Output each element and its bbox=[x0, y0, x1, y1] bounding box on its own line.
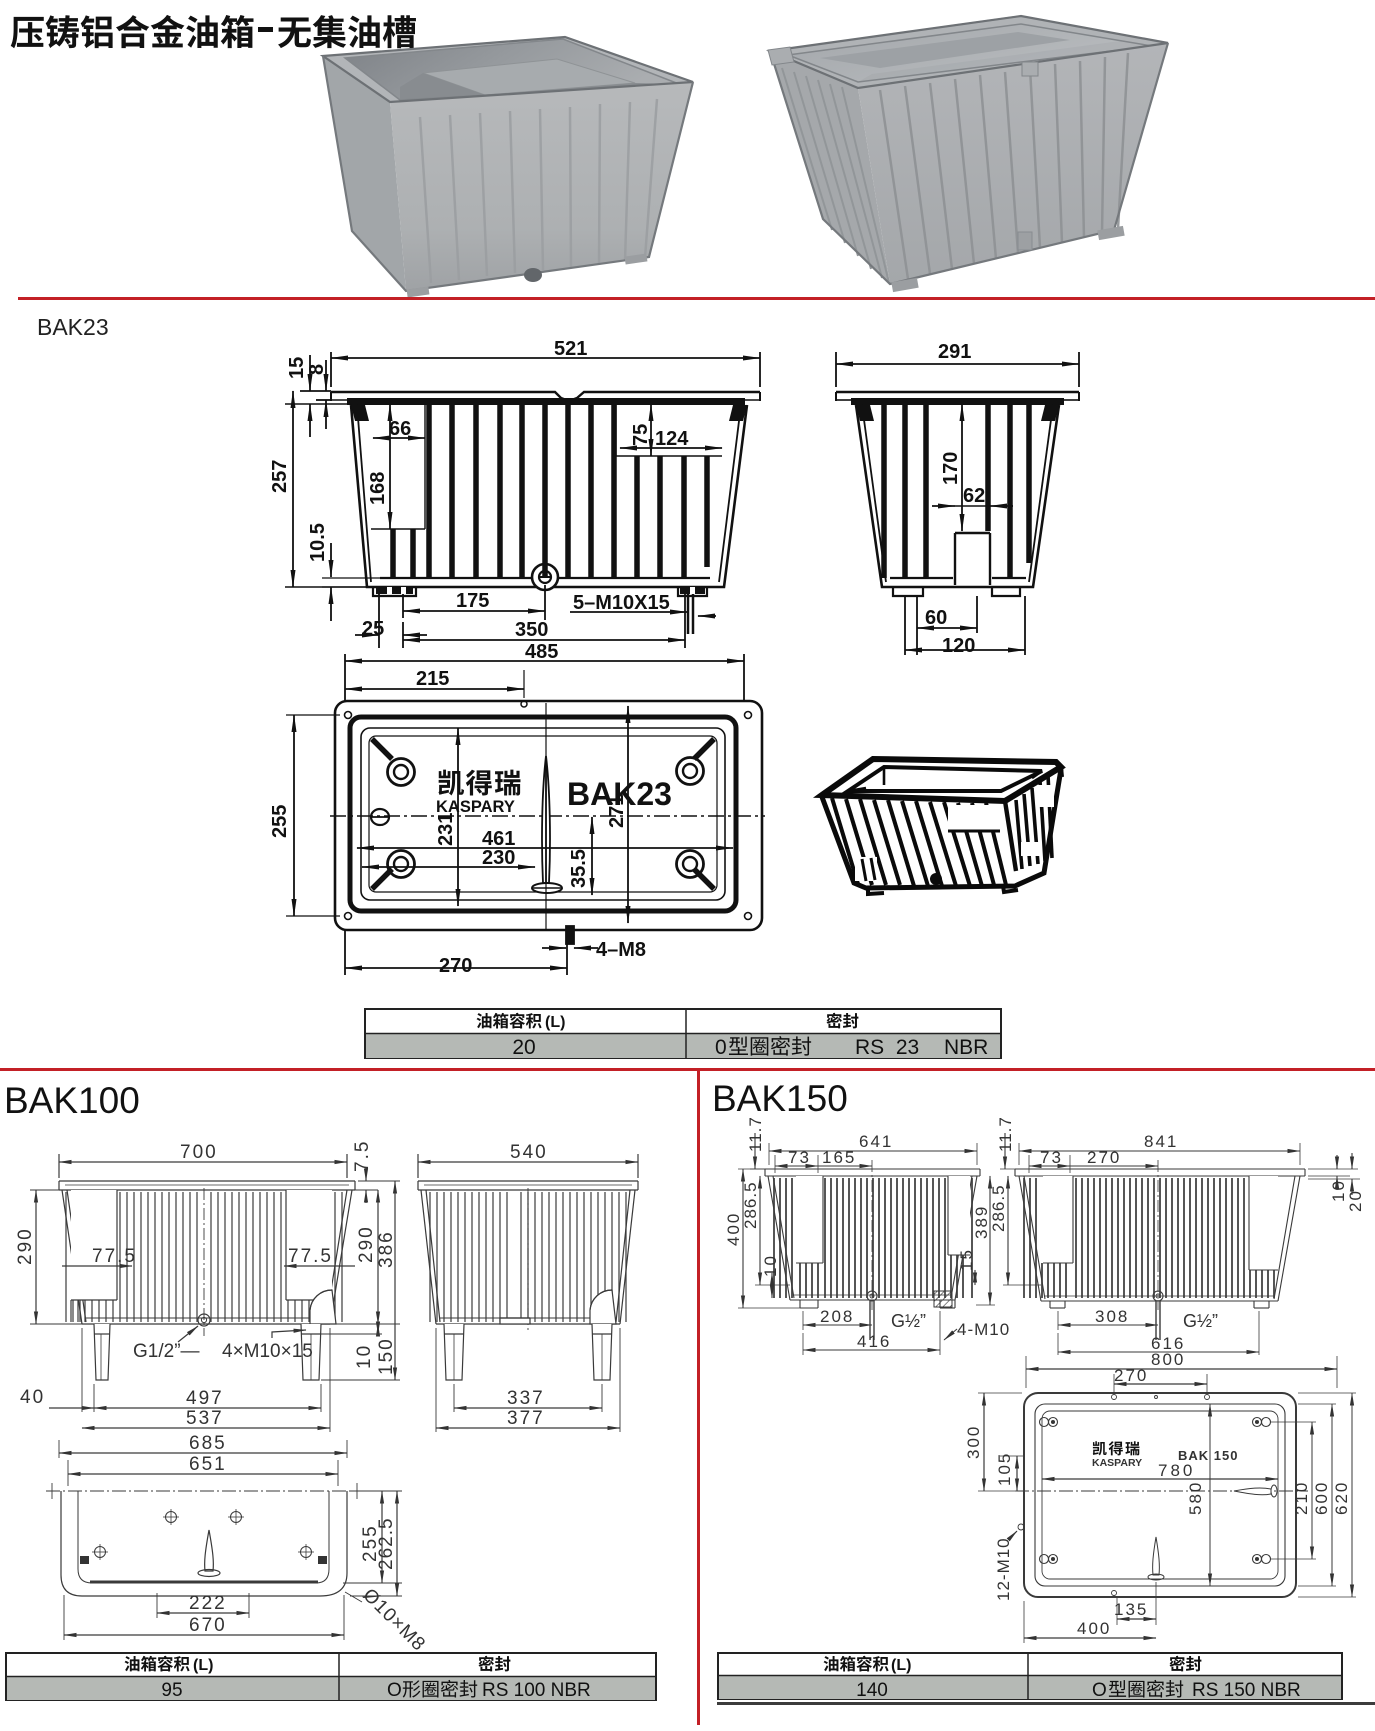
svg-text:150: 150 bbox=[376, 1337, 397, 1375]
svg-text:NBR: NBR bbox=[944, 1036, 988, 1059]
svg-text:210: 210 bbox=[1292, 1481, 1311, 1515]
svg-text:BAK23: BAK23 bbox=[567, 776, 672, 812]
svg-text:215: 215 bbox=[416, 668, 449, 690]
svg-text:62: 62 bbox=[963, 485, 985, 507]
svg-text:231: 231 bbox=[435, 813, 457, 846]
svg-text:(L): (L) bbox=[193, 1657, 213, 1674]
svg-text:337: 337 bbox=[507, 1388, 545, 1409]
svg-text:537: 537 bbox=[186, 1408, 224, 1429]
svg-text:(L): (L) bbox=[545, 1014, 565, 1031]
svg-text:Ø10×M8: Ø10×M8 bbox=[358, 1585, 429, 1650]
svg-text:105: 105 bbox=[995, 1452, 1014, 1486]
svg-text:12-M10: 12-M10 bbox=[994, 1537, 1013, 1601]
svg-text:286.5: 286.5 bbox=[741, 1181, 760, 1229]
svg-text:580: 580 bbox=[1186, 1481, 1205, 1515]
svg-text:RS 100 NBR: RS 100 NBR bbox=[482, 1680, 591, 1701]
svg-text:170: 170 bbox=[940, 452, 962, 485]
svg-text:270: 270 bbox=[439, 955, 472, 977]
svg-text:841: 841 bbox=[1144, 1132, 1178, 1151]
svg-text:780: 780 bbox=[1158, 1461, 1195, 1480]
svg-text:G½”: G½” bbox=[1183, 1311, 1218, 1331]
svg-text:291: 291 bbox=[938, 341, 971, 363]
svg-text:G½”: G½” bbox=[891, 1311, 926, 1331]
svg-text:262.5: 262.5 bbox=[376, 1517, 397, 1570]
svg-text:208: 208 bbox=[820, 1307, 854, 1326]
svg-text:5–M10X15: 5–M10X15 bbox=[573, 592, 670, 614]
svg-text:77.5: 77.5 bbox=[92, 1246, 137, 1267]
svg-text:620: 620 bbox=[1332, 1481, 1351, 1515]
svg-text:RS 150 NBR: RS 150 NBR bbox=[1192, 1680, 1301, 1701]
svg-text:124: 124 bbox=[655, 428, 689, 450]
svg-text:120: 120 bbox=[942, 635, 975, 657]
svg-text:20: 20 bbox=[512, 1036, 535, 1059]
svg-text:G1/2”—: G1/2”— bbox=[133, 1341, 200, 1362]
svg-text:140: 140 bbox=[856, 1680, 888, 1701]
svg-text:286.5: 286.5 bbox=[989, 1184, 1008, 1232]
svg-text:(L): (L) bbox=[891, 1657, 911, 1674]
svg-text:10: 10 bbox=[761, 1254, 780, 1277]
svg-text:25: 25 bbox=[362, 618, 384, 640]
svg-text:35.5: 35.5 bbox=[568, 849, 590, 888]
svg-text:350: 350 bbox=[515, 619, 548, 641]
svg-text:700: 700 bbox=[180, 1142, 218, 1163]
svg-text:0: 0 bbox=[715, 1036, 727, 1059]
svg-text:RS 23: RS 23 bbox=[855, 1036, 919, 1059]
svg-text:255: 255 bbox=[270, 805, 291, 838]
svg-text:11.7: 11.7 bbox=[996, 1116, 1015, 1152]
svg-text:77.5: 77.5 bbox=[288, 1246, 333, 1267]
svg-text:135: 135 bbox=[1114, 1600, 1148, 1619]
svg-text:O: O bbox=[387, 1680, 402, 1701]
svg-text:290: 290 bbox=[356, 1225, 377, 1263]
svg-text:KASPARY: KASPARY bbox=[1092, 1457, 1142, 1469]
svg-text:60: 60 bbox=[925, 607, 947, 629]
svg-text:521: 521 bbox=[554, 338, 587, 360]
svg-text:75: 75 bbox=[630, 424, 652, 446]
svg-text:10: 10 bbox=[354, 1344, 375, 1369]
svg-text:4-M10: 4-M10 bbox=[957, 1320, 1010, 1339]
svg-text:20: 20 bbox=[1346, 1189, 1365, 1212]
svg-text:11.7: 11.7 bbox=[746, 1116, 765, 1152]
svg-text:175: 175 bbox=[456, 590, 489, 612]
svg-text:230: 230 bbox=[482, 847, 515, 869]
svg-text:651: 651 bbox=[189, 1454, 227, 1475]
svg-text:165: 165 bbox=[822, 1148, 856, 1167]
svg-text:386: 386 bbox=[376, 1230, 397, 1268]
svg-text:4×M10×15: 4×M10×15 bbox=[222, 1341, 313, 1362]
svg-text:497: 497 bbox=[186, 1388, 224, 1409]
svg-text:40: 40 bbox=[20, 1387, 45, 1408]
svg-text:377: 377 bbox=[507, 1408, 545, 1429]
svg-text:15: 15 bbox=[957, 1248, 976, 1271]
svg-text:257: 257 bbox=[270, 460, 291, 493]
svg-text:168: 168 bbox=[367, 472, 389, 505]
svg-text:485: 485 bbox=[525, 641, 558, 663]
svg-text:15: 15 bbox=[286, 357, 308, 379]
svg-text:KASPARY: KASPARY bbox=[436, 798, 515, 816]
svg-text:670: 670 bbox=[189, 1615, 227, 1636]
svg-text:10.5: 10.5 bbox=[307, 523, 329, 562]
svg-text:73: 73 bbox=[1040, 1148, 1063, 1167]
svg-text:7.5: 7.5 bbox=[352, 1140, 373, 1172]
svg-text:290: 290 bbox=[15, 1227, 36, 1265]
svg-text:270: 270 bbox=[1114, 1366, 1148, 1385]
svg-text:270: 270 bbox=[1087, 1148, 1121, 1167]
svg-text:600: 600 bbox=[1312, 1481, 1331, 1515]
svg-text:540: 540 bbox=[510, 1142, 548, 1163]
svg-text:800: 800 bbox=[1151, 1350, 1185, 1369]
svg-text:O: O bbox=[1092, 1680, 1107, 1701]
svg-text:300: 300 bbox=[964, 1425, 983, 1459]
svg-text:641: 641 bbox=[859, 1132, 893, 1151]
svg-text:308: 308 bbox=[1095, 1307, 1129, 1326]
svg-text:95: 95 bbox=[161, 1680, 182, 1701]
svg-text:8: 8 bbox=[306, 364, 328, 375]
svg-text:416: 416 bbox=[857, 1332, 891, 1351]
svg-text:66: 66 bbox=[389, 418, 411, 440]
svg-text:BAK 150: BAK 150 bbox=[1178, 1448, 1238, 1463]
svg-text:4–M8: 4–M8 bbox=[596, 939, 646, 961]
svg-text:222: 222 bbox=[189, 1593, 227, 1614]
svg-text:400: 400 bbox=[1077, 1619, 1111, 1638]
svg-text:73: 73 bbox=[788, 1148, 811, 1167]
